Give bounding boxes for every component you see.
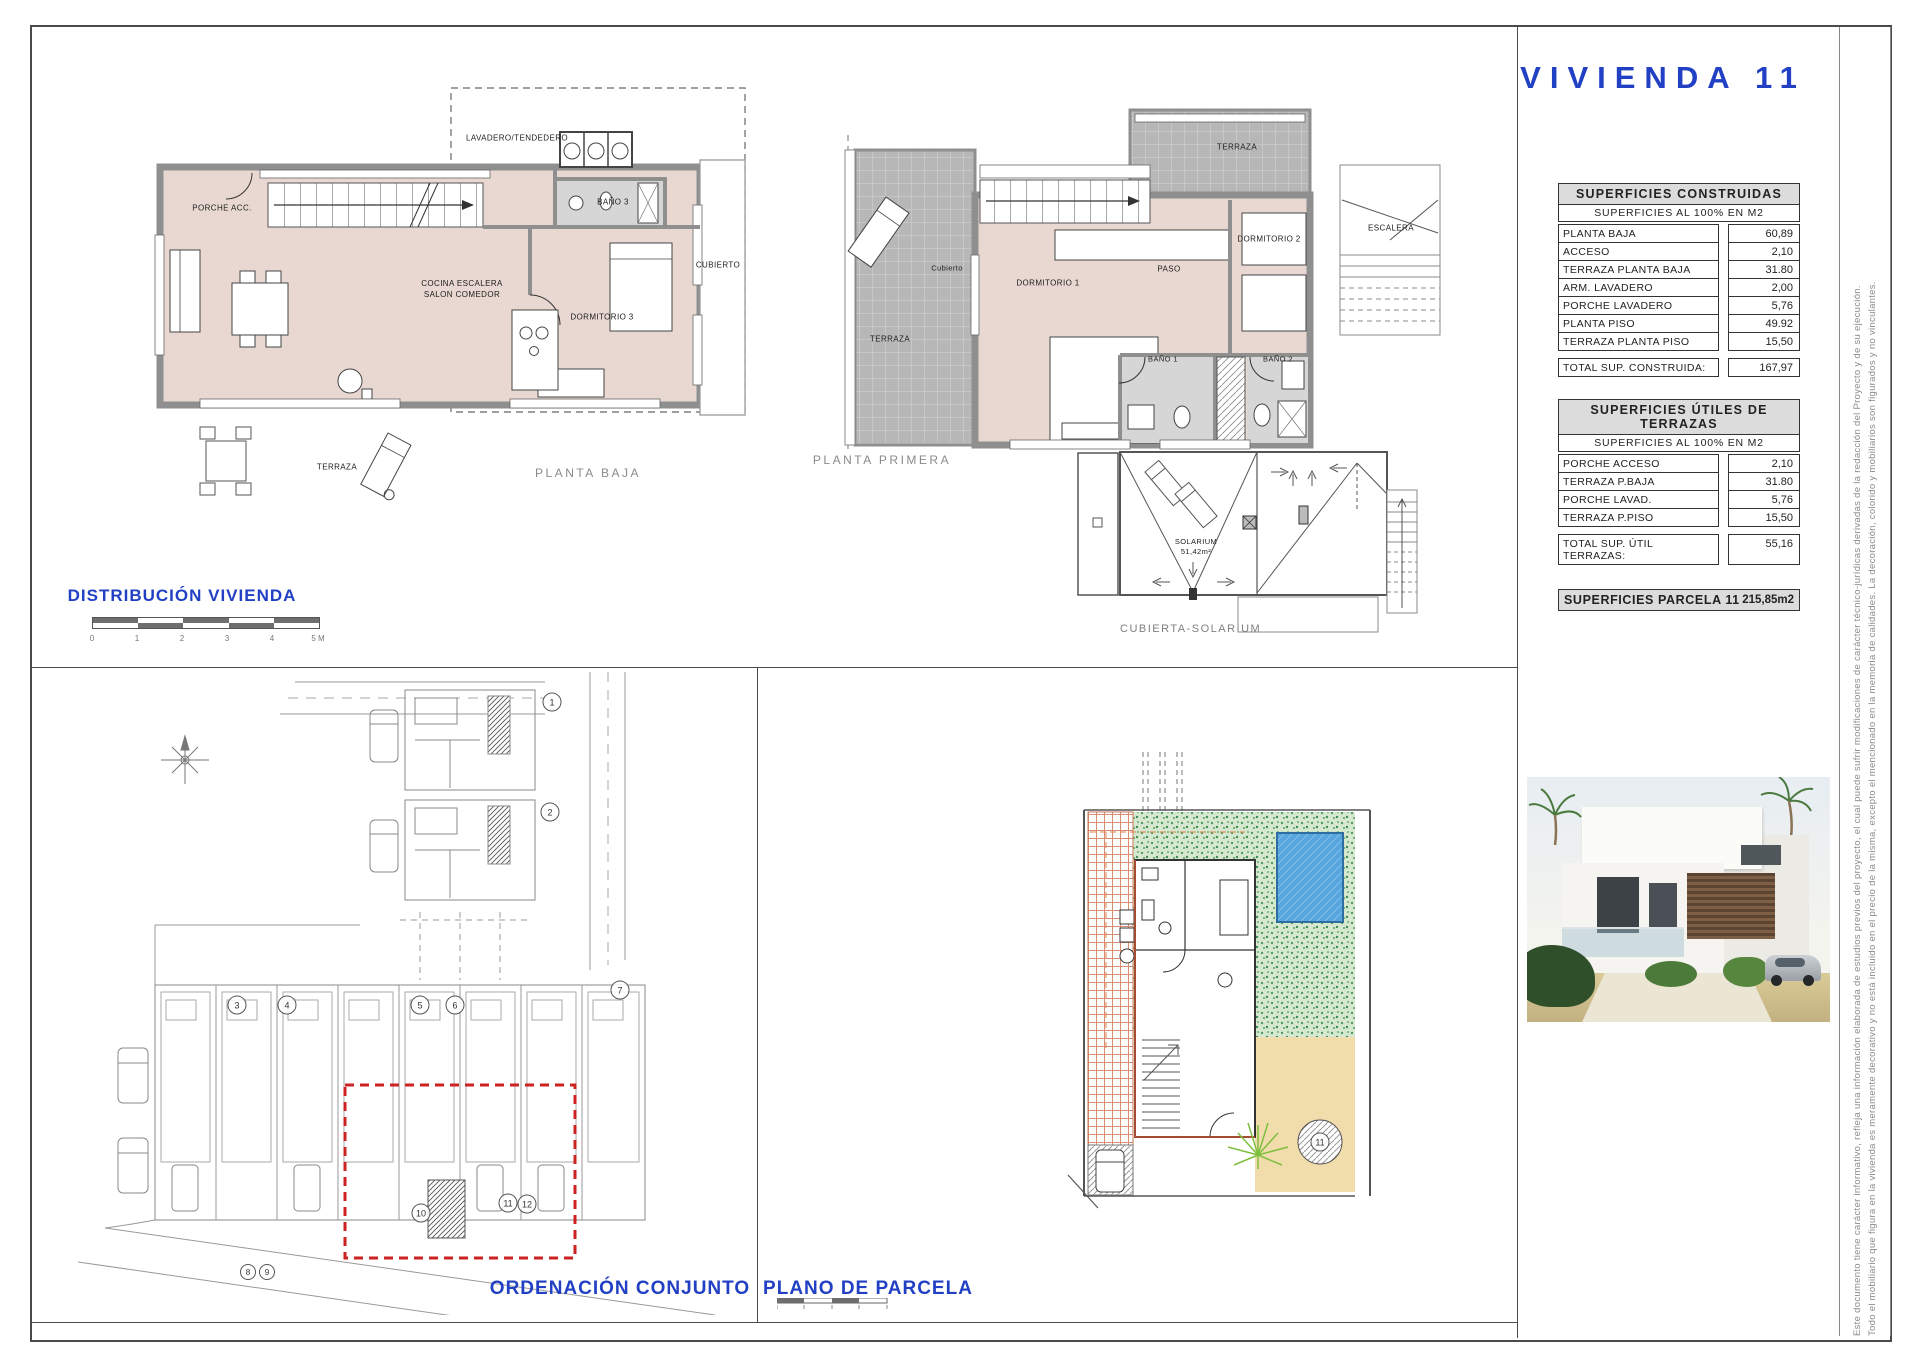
room-label-paso: PASO (1157, 265, 1180, 274)
table-row: PLANTA PISO49.92 (1558, 314, 1800, 333)
room-label-cocina-salon: COCINA ESCALERA SALON COMEDOR (421, 279, 503, 301)
table-terraces-rows: PORCHE ACCESO2,10 TERRAZA P.BAJA31.80 PO… (1558, 454, 1800, 565)
compass-icon (161, 736, 209, 784)
unit-number-badge: 3 (228, 996, 247, 1015)
unit-number-badge: 10 (412, 1204, 431, 1223)
scale-tick: 1 (135, 634, 139, 643)
table-constructed-rows: PLANTA BAJA60,89 ACCESO2,10 TERRAZA PLAN… (1558, 224, 1800, 377)
room-label-bano3: BAÑO 3 (597, 198, 629, 207)
table-terraces-title: SUPERFICIES ÚTILES DE TERRAZAS (1558, 399, 1800, 435)
total-value: 55,16 (1728, 534, 1800, 565)
table-constructed-title: SUPERFICIES CONSTRUIDAS (1558, 183, 1800, 205)
parcel-surface-value: 215,85m2 (1742, 594, 1794, 606)
room-label-dormitorio2: DORMITORIO 2 (1237, 235, 1300, 244)
unit-number-badge: 7 (611, 981, 630, 1000)
scale-tick: 3 (225, 634, 229, 643)
plan-title-planta-primera: PLANTA PRIMERA (813, 453, 951, 467)
row-value: 2,10 (1728, 242, 1800, 261)
parcel-surface-label: SUPERFICIES PARCELA 11 (1564, 593, 1742, 607)
house-render-image (1527, 777, 1830, 1022)
room-label-cubierto: CUBIERTO (696, 261, 740, 270)
row-value: 31.80 (1728, 472, 1800, 491)
section-title-distribucion: DISTRIBUCIÓN VIVIENDA (68, 586, 297, 606)
unit-number-badge: 5 (411, 996, 430, 1015)
unit-number-badge: 9 (259, 1264, 275, 1280)
room-label-porche: PORCHE ACC. (192, 204, 252, 213)
row-label: ACCESO (1558, 242, 1719, 261)
room-label-terraza-pb: TERRAZA (317, 463, 357, 472)
divider-horizontal (30, 667, 1517, 668)
row-value: 49.92 (1728, 314, 1800, 333)
row-label: TERRAZA P.PISO (1558, 508, 1719, 527)
table-row: TERRAZA P.PISO15,50 (1558, 508, 1800, 527)
unit-number-badge: 6 (446, 996, 465, 1015)
render-window (1649, 883, 1677, 927)
room-label-dormitorio3: DORMITORIO 3 (570, 313, 633, 322)
table-constructed-subtitle: SUPERFICIES AL 100% EN M2 (1558, 205, 1800, 222)
render-car (1765, 955, 1821, 981)
table-row: TERRAZA P.BAJA31.80 (1558, 472, 1800, 491)
render-wood-slats (1687, 873, 1775, 939)
row-value: 31.80 (1728, 260, 1800, 279)
total-label: TOTAL SUP. CONSTRUIDA: (1558, 358, 1719, 377)
render-window (1741, 845, 1781, 865)
row-label: PLANTA PISO (1558, 314, 1719, 333)
row-value: 15,50 (1728, 332, 1800, 351)
render-bush (1723, 957, 1767, 987)
legal-disclaimer: Este documento tiene carácter informativ… (1839, 27, 1891, 1336)
unit-number-badge: 8 (240, 1264, 256, 1280)
row-value: 60,89 (1728, 224, 1800, 243)
section-title-parcela: PLANO DE PARCELA (763, 1278, 973, 1300)
room-label-terraza-p1: TERRAZA (870, 335, 910, 344)
row-label: ARM. LAVADERO (1558, 278, 1719, 297)
unit-number-badge: 1 (543, 693, 562, 712)
row-value: 15,50 (1728, 508, 1800, 527)
table-row: TERRAZA PLANTA BAJA31.80 (1558, 260, 1800, 279)
room-label-bano2: BAÑO 2 (1263, 355, 1293, 364)
drawing-sheet: VIVIENDA 11 SUPERFICIES CONSTRUIDAS SUPE… (0, 0, 1920, 1362)
table-row: PORCHE LAVADERO5,76 (1558, 296, 1800, 315)
render-house-upper (1582, 807, 1762, 869)
row-label: PORCHE ACCESO (1558, 454, 1719, 473)
disclaimer-line-2: Todo el mobiliario que figura en la vivi… (1867, 36, 1878, 1336)
table-row: PORCHE LAVAD.5,76 (1558, 490, 1800, 509)
scale-tick: 0 (90, 634, 94, 643)
room-label-terraza-sup: TERRAZA (1217, 143, 1257, 152)
cubierta-solarium-drawing (1075, 450, 1450, 645)
render-bush (1645, 961, 1697, 987)
row-value: 5,76 (1728, 296, 1800, 315)
room-label-solarium: SOLARIUM 51,42m² (1175, 537, 1217, 557)
total-label: TOTAL SUP. ÚTIL TERRAZAS: (1558, 534, 1719, 565)
room-label-bano1: BAÑO 1 (1148, 355, 1178, 364)
row-value: 2,10 (1728, 454, 1800, 473)
unit-number-badge: 2 (541, 803, 560, 822)
divider-bottom (30, 1322, 1517, 1323)
unit-number-badge: 4 (278, 996, 297, 1015)
row-label: PORCHE LAVADERO (1558, 296, 1719, 315)
table-row: PLANTA BAJA60,89 (1558, 224, 1800, 243)
room-label-lavadero: LAVADERO/TENDEDERO (466, 134, 568, 143)
table-row: TERRAZA PLANTA PISO15,50 (1558, 332, 1800, 351)
table-row: ARM. LAVADERO2,00 (1558, 278, 1800, 297)
parcel-unit-number-badge: 11 (1311, 1133, 1330, 1152)
table-total-row: TOTAL SUP. CONSTRUIDA:167,97 (1558, 358, 1800, 377)
row-label: TERRAZA P.BAJA (1558, 472, 1719, 491)
room-label-dormitorio1: DORMITORIO 1 (1016, 279, 1079, 288)
total-value: 167,97 (1728, 358, 1800, 377)
divider-right-panel (1517, 25, 1518, 1338)
parcel-surface-bar: SUPERFICIES PARCELA 11 215,85m2 (1558, 589, 1800, 611)
scale-bar (92, 617, 320, 629)
table-row: PORCHE ACCESO2,10 (1558, 454, 1800, 473)
disclaimer-line-1: Este documento tiene carácter informativ… (1852, 36, 1863, 1336)
page-title: VIVIENDA 11 (1520, 60, 1806, 96)
scale-tick: 4 (270, 634, 274, 643)
plan-title-cubierta: CUBIERTA-SOLARIUM (1120, 623, 1261, 635)
room-label-escalera: ESCALERA (1368, 224, 1414, 233)
render-glass-balcony (1562, 927, 1684, 957)
plan-title-planta-baja: PLANTA BAJA (535, 466, 641, 480)
unit-number-badge: 12 (518, 1195, 537, 1214)
table-total-row: TOTAL SUP. ÚTIL TERRAZAS:55,16 (1558, 534, 1800, 565)
scale-tick: 5 M (311, 634, 324, 643)
row-label: TERRAZA PLANTA PISO (1558, 332, 1719, 351)
row-label: PORCHE LAVAD. (1558, 490, 1719, 509)
room-label-cubierto-terraza: Cubierto (931, 264, 963, 273)
render-window (1597, 877, 1639, 933)
parcela-scale-bar (777, 1298, 889, 1314)
ordenacion-conjunto-drawing (60, 670, 760, 1315)
row-label: TERRAZA PLANTA BAJA (1558, 260, 1719, 279)
row-value: 5,76 (1728, 490, 1800, 509)
surface-tables: SUPERFICIES CONSTRUIDAS SUPERFICIES AL 1… (1558, 183, 1800, 611)
row-value: 2,00 (1728, 278, 1800, 297)
unit-number-badge-highlighted: 11 (499, 1194, 518, 1213)
scale-tick: 2 (180, 634, 184, 643)
section-title-ordenacion: ORDENACIÓN CONJUNTO (490, 1278, 750, 1300)
table-row: ACCESO2,10 (1558, 242, 1800, 261)
row-label: PLANTA BAJA (1558, 224, 1719, 243)
table-terraces-subtitle: SUPERFICIES AL 100% EN M2 (1558, 435, 1800, 452)
